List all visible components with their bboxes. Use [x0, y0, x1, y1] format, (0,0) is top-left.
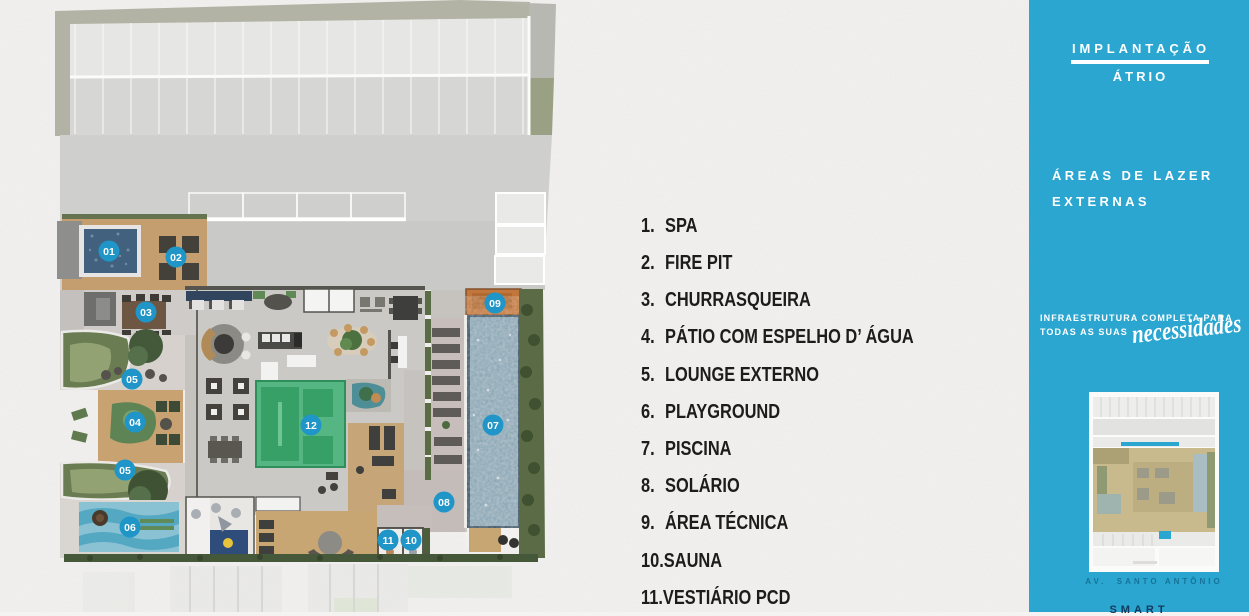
svg-text:02: 02 — [170, 252, 182, 264]
svg-text:03: 03 — [140, 307, 152, 319]
svg-text:01: 01 — [103, 246, 115, 258]
svg-text:05: 05 — [119, 465, 131, 477]
svg-text:08: 08 — [438, 497, 450, 509]
svg-text:09: 09 — [489, 298, 501, 310]
svg-text:12: 12 — [305, 420, 317, 432]
svg-text:04: 04 — [129, 417, 141, 429]
svg-text:10: 10 — [405, 535, 417, 547]
svg-text:11: 11 — [382, 535, 393, 547]
svg-text:05: 05 — [126, 374, 138, 386]
svg-text:06: 06 — [124, 522, 136, 534]
svg-text:07: 07 — [487, 420, 499, 432]
